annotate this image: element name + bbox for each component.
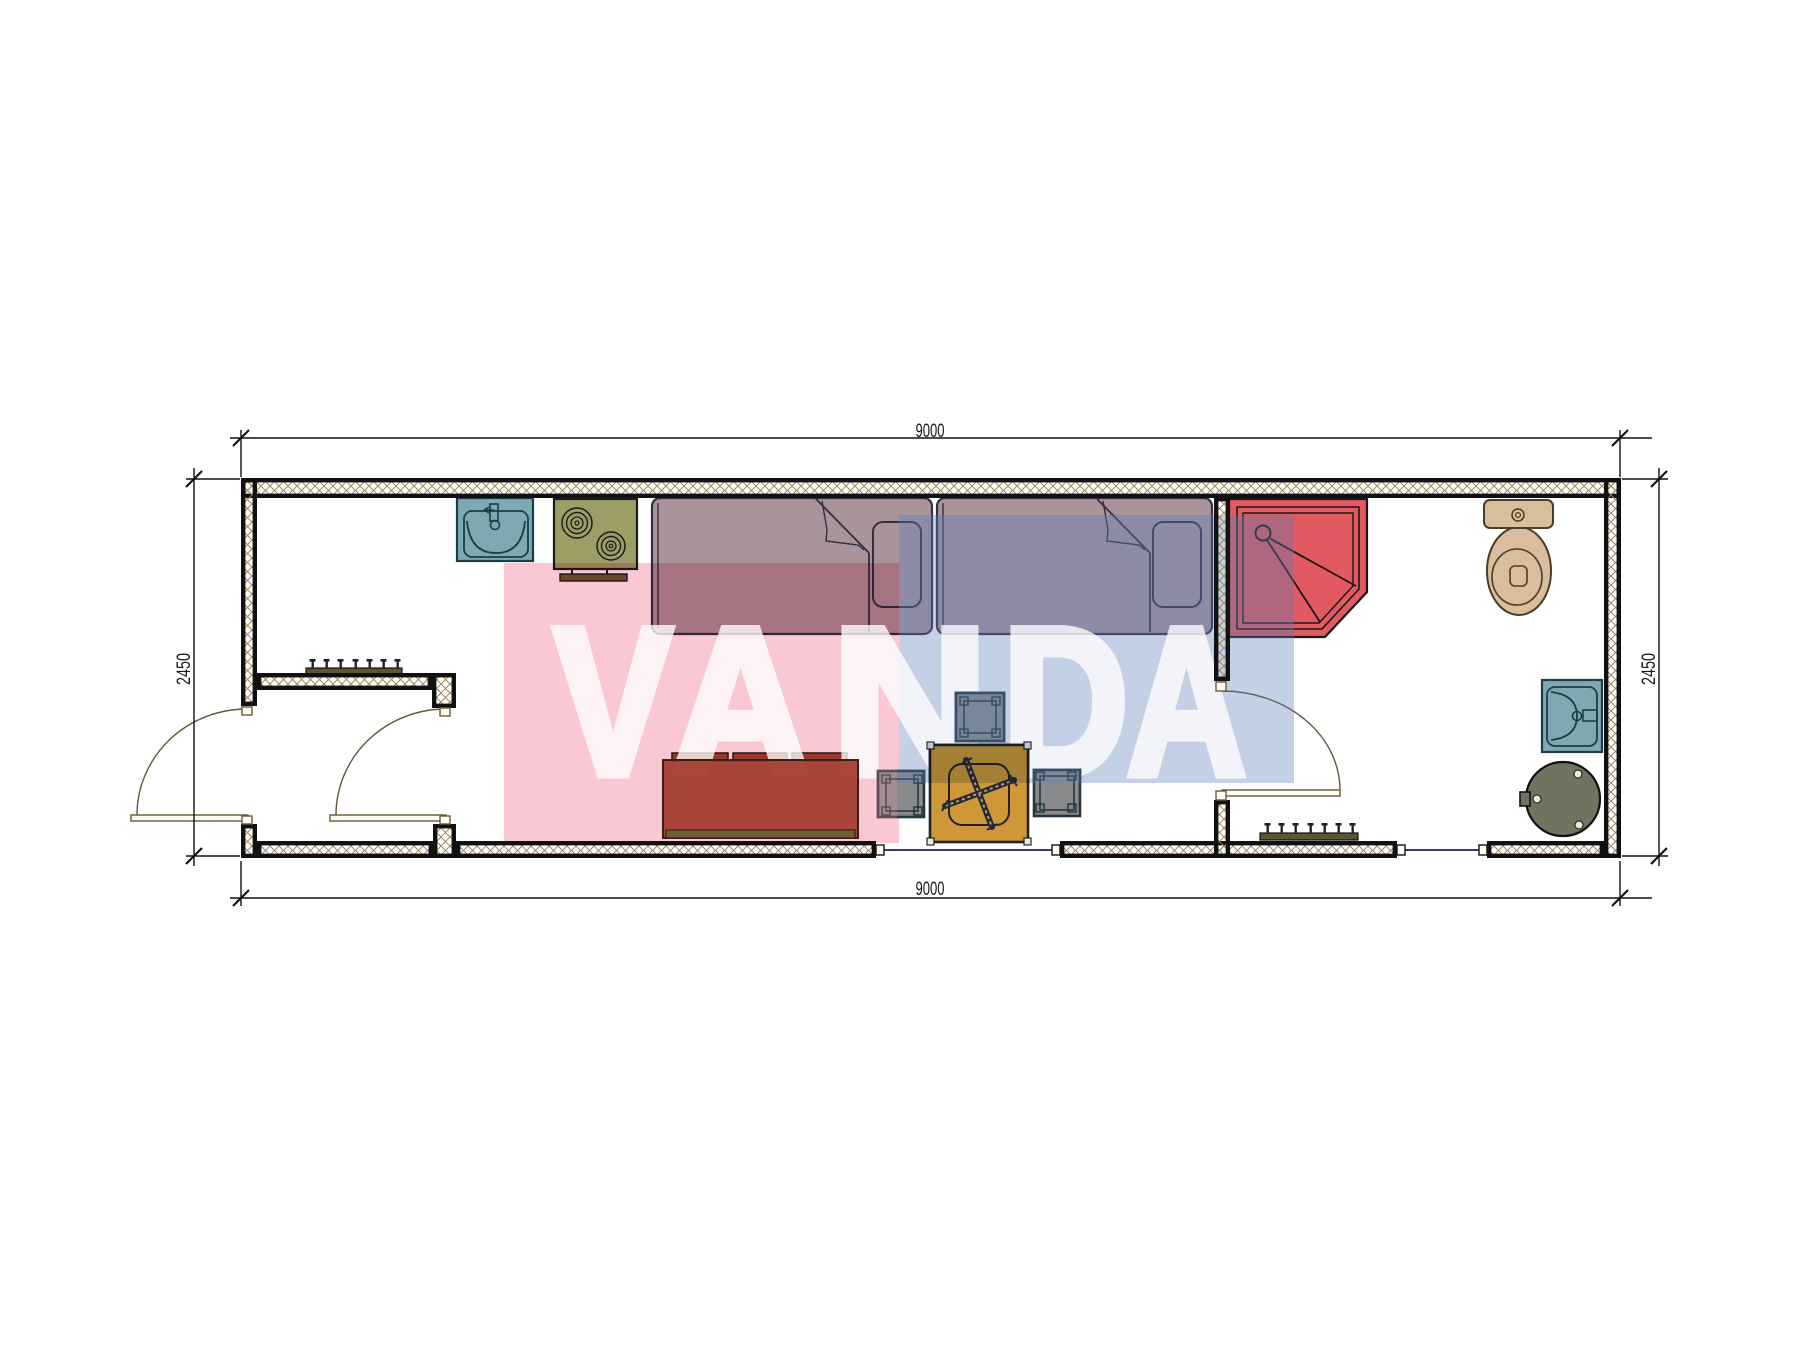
svg-text:9000: 9000 [916, 421, 945, 442]
svg-text:V: V [554, 584, 672, 819]
svg-text:2450: 2450 [174, 653, 195, 685]
svg-text:2450: 2450 [1639, 653, 1660, 685]
svg-text:9000: 9000 [916, 879, 945, 900]
